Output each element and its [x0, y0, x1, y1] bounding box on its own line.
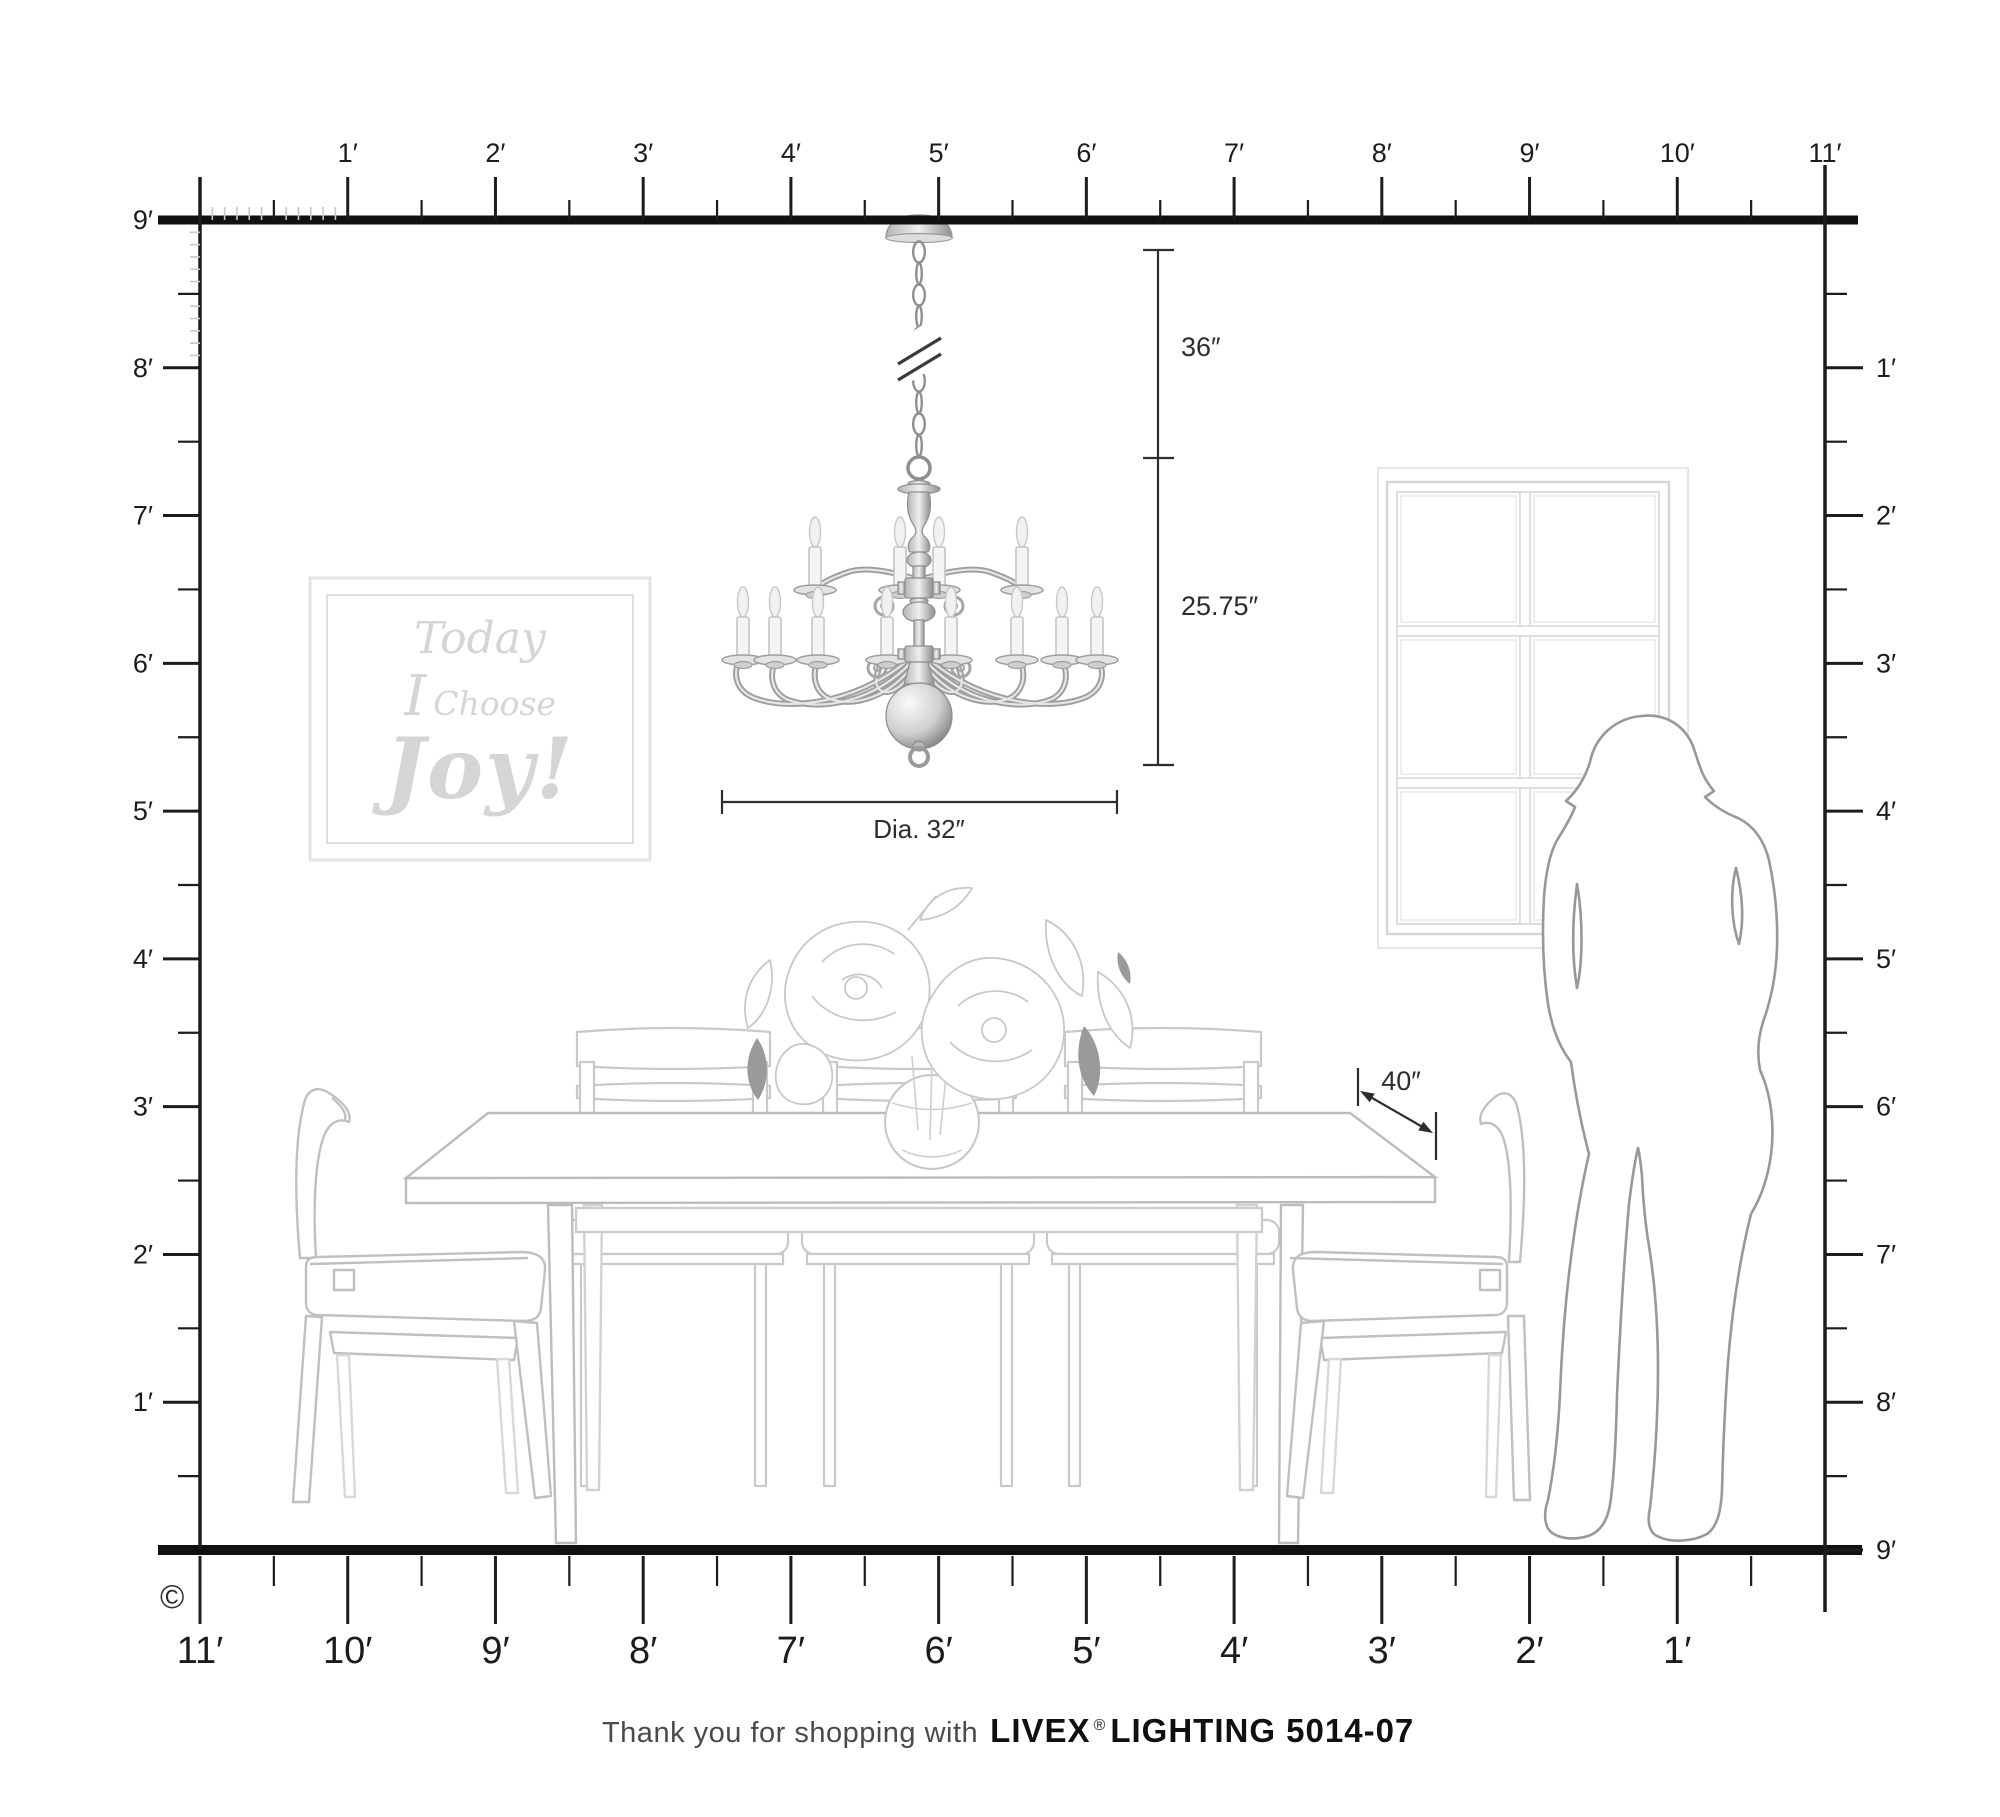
bottom-ruler-label: 7′: [777, 1630, 805, 1672]
bottom-ruler-label: 9′: [481, 1630, 509, 1672]
candle: [1056, 617, 1068, 660]
chain-link: [913, 414, 925, 435]
dark-leaf: [1118, 952, 1131, 984]
person-left-arm-gap: [1573, 884, 1581, 988]
top-ruler-label: 8′: [1372, 138, 1392, 168]
chair-post: [1244, 1062, 1258, 1118]
brand-name: LIVEX: [990, 1712, 1090, 1750]
arrowhead-icon: [1418, 1122, 1433, 1133]
candle-bulb: [882, 587, 893, 617]
right-ruler-label: 4′: [1876, 796, 1896, 826]
product-number: LIGHTING 5014-07: [1110, 1712, 1414, 1750]
left-ruler-label: 3′: [133, 1092, 153, 1122]
bottom-ruler-label: 2′: [1515, 1630, 1543, 1672]
wall-art-line-3: Joy!: [327, 727, 633, 811]
dining-table: [406, 1113, 1435, 1543]
column-hub-upper: [905, 578, 933, 598]
candle-bulb: [738, 587, 749, 617]
chair-side-rail: [1320, 1332, 1506, 1360]
peony-bud: [776, 1044, 833, 1104]
bottom-ruler-label: 3′: [1368, 1630, 1396, 1672]
chair-leg: [1001, 1264, 1012, 1486]
wall-art-text: Today I Choose Joy!: [327, 595, 633, 843]
diameter-dimension: [722, 790, 1117, 814]
wall-art-line-2: I Choose: [327, 669, 633, 725]
candle: [737, 617, 749, 660]
clearance-label: 40″: [1381, 1066, 1421, 1096]
height-dimension: [1143, 250, 1174, 765]
bobeche-cup: [734, 662, 752, 669]
top-ruler-label: 10′: [1660, 138, 1695, 168]
diameter-label: Dia. 32″: [873, 814, 965, 844]
top-ruler-label: 1′: [338, 138, 358, 168]
person-silhouette: [1543, 716, 1777, 1541]
candle: [881, 617, 893, 660]
bobeche-cup: [766, 662, 784, 669]
right-ruler-label: 3′: [1876, 648, 1896, 678]
bottom-ruler-label: 5′: [1072, 1630, 1100, 1672]
chain-length-label: 36″: [1181, 332, 1221, 362]
bottom-ruler-label: 1′: [1663, 1630, 1691, 1672]
chandelier: [722, 215, 1118, 766]
candle: [945, 617, 957, 660]
right-ruler-label: 1′: [1876, 353, 1896, 383]
peony-bloom: [785, 922, 930, 1061]
right-ruler-label: 9′: [1876, 1535, 1896, 1565]
chain-link: [916, 263, 922, 284]
bobeche-cup: [878, 662, 896, 669]
left-ruler-label: 9′: [133, 205, 153, 235]
chair-leg: [1069, 1264, 1080, 1486]
top-ruler-label: 6′: [1076, 138, 1096, 168]
candle-bulb: [1012, 587, 1023, 617]
table-back-left-leg: [584, 1205, 602, 1490]
chair-seat-frame: [807, 1254, 1029, 1264]
chair-post: [580, 1062, 594, 1118]
wall-art-line-1: Today: [327, 617, 633, 661]
bobeche-cup: [1008, 662, 1026, 669]
chair-leg: [755, 1264, 766, 1486]
chair-inner-leg: [1486, 1355, 1501, 1497]
product-scale-diagram: 36″ 25.75″ Dia. 32″ 40″ 1′2′3′4′5′6′7′8′…: [0, 0, 2000, 1817]
chair-back-gap: [1480, 1270, 1500, 1290]
chair-mid-rail: [577, 1083, 770, 1101]
bobeche-cup: [942, 662, 960, 669]
scene-drawing: 36″ 25.75″ Dia. 32″ 40″ 1′2′3′4′5′6′7′8′…: [0, 0, 2000, 1817]
chair-back-leg: [1508, 1316, 1530, 1500]
leaf: [920, 888, 972, 920]
table-apron: [576, 1208, 1262, 1232]
chair-side-rail: [330, 1332, 518, 1360]
chair-inner-leg: [337, 1355, 355, 1497]
right-ruler-label: 6′: [1876, 1092, 1896, 1122]
hang-ring: [908, 457, 930, 479]
left-ruler-label: 2′: [133, 1239, 153, 1269]
bobeche-cup: [1088, 662, 1106, 669]
candle-bulb: [770, 587, 781, 617]
bobeche-cup: [1053, 662, 1071, 669]
right-ruler-label: 2′: [1876, 501, 1896, 531]
chair-back-post: [1480, 1093, 1524, 1262]
candle: [812, 617, 824, 660]
chair-inner-leg: [1321, 1359, 1341, 1493]
candle: [1011, 617, 1023, 660]
candle-bulb: [946, 587, 957, 617]
chair-inner-leg: [497, 1359, 518, 1493]
chair-back-leg: [293, 1316, 322, 1502]
left-ruler-label: 6′: [133, 648, 153, 678]
bottom-ruler-label: 10′: [323, 1630, 372, 1672]
footer-text: Thank you for shopping with LIVEX ® LIGH…: [602, 1712, 1414, 1750]
chair-post: [1068, 1062, 1082, 1118]
wall-art-word-choose: Choose: [433, 687, 556, 720]
leaf: [745, 960, 772, 1028]
right-ruler-label: 7′: [1876, 1239, 1896, 1269]
ball-finial: [886, 683, 952, 749]
chain-link: [916, 435, 922, 456]
candle: [809, 547, 821, 590]
dining-set: [293, 888, 1530, 1543]
window-mullion-horizontal: [1397, 626, 1659, 636]
chair-front-leg: [514, 1321, 551, 1498]
column-hub-lower: [905, 646, 933, 662]
chain-link: [916, 392, 922, 413]
chair-back-post: [296, 1089, 349, 1258]
fixture-height-label: 25.75″: [1181, 591, 1259, 621]
bottom-ruler-label: 6′: [925, 1630, 953, 1672]
top-ruler-label: 9′: [1519, 138, 1539, 168]
candle: [1016, 547, 1028, 590]
chair-back-gap: [334, 1270, 354, 1290]
bottom-ruler-label: 8′: [629, 1630, 657, 1672]
candle: [769, 617, 781, 660]
left-ruler-label: 8′: [133, 353, 153, 383]
top-ruler-label: 7′: [1224, 138, 1244, 168]
chain-link: [916, 306, 922, 327]
chair-leg: [824, 1264, 835, 1486]
bottom-ruler-label: 4′: [1220, 1630, 1248, 1672]
bobeche-cup: [809, 662, 827, 669]
top-ruler-label: 2′: [485, 138, 505, 168]
right-ruler-label: 5′: [1876, 944, 1896, 974]
footer-message: Thank you for shopping with: [602, 1717, 978, 1750]
leaf: [1046, 920, 1083, 996]
registered-trademark-icon: ®: [1094, 1717, 1106, 1735]
top-ruler-label: 4′: [781, 138, 801, 168]
candle-bulb: [895, 517, 906, 547]
right-ruler-label: 8′: [1876, 1387, 1896, 1417]
left-ruler-label: 7′: [133, 501, 153, 531]
copyright-symbol: ©: [160, 1578, 184, 1616]
top-ruler-label: 3′: [633, 138, 653, 168]
table-front-left-leg: [548, 1205, 576, 1543]
chair-top-rail: [577, 1028, 770, 1069]
candle-bulb: [810, 517, 821, 547]
candle-bulb: [1057, 587, 1068, 617]
person-outline: [1543, 716, 1777, 1541]
candle-bulb: [1017, 517, 1028, 547]
table-back-right-leg: [1237, 1205, 1257, 1490]
chain-link: [913, 242, 925, 263]
candle-bulb: [1092, 587, 1103, 617]
candle-bulb: [813, 587, 824, 617]
wall-art-word-i: I: [404, 669, 426, 725]
candle: [1091, 617, 1103, 660]
window-mullion-vertical: [1520, 492, 1530, 924]
top-ruler-label: 11′: [1808, 138, 1841, 168]
top-ruler-label: 5′: [929, 138, 949, 168]
chain-link: [913, 285, 925, 306]
bottom-ruler-label: 11′: [177, 1630, 224, 1672]
peony-bloom: [922, 958, 1064, 1099]
table-top-edge: [406, 1177, 1435, 1203]
left-ruler-label: 5′: [133, 796, 153, 826]
arrowhead-icon: [1360, 1091, 1375, 1102]
candle-bulb: [934, 517, 945, 547]
left-ruler-label: 4′: [133, 944, 153, 974]
column-baluster: [908, 492, 931, 552]
left-ruler-label: 1′: [133, 1387, 153, 1417]
